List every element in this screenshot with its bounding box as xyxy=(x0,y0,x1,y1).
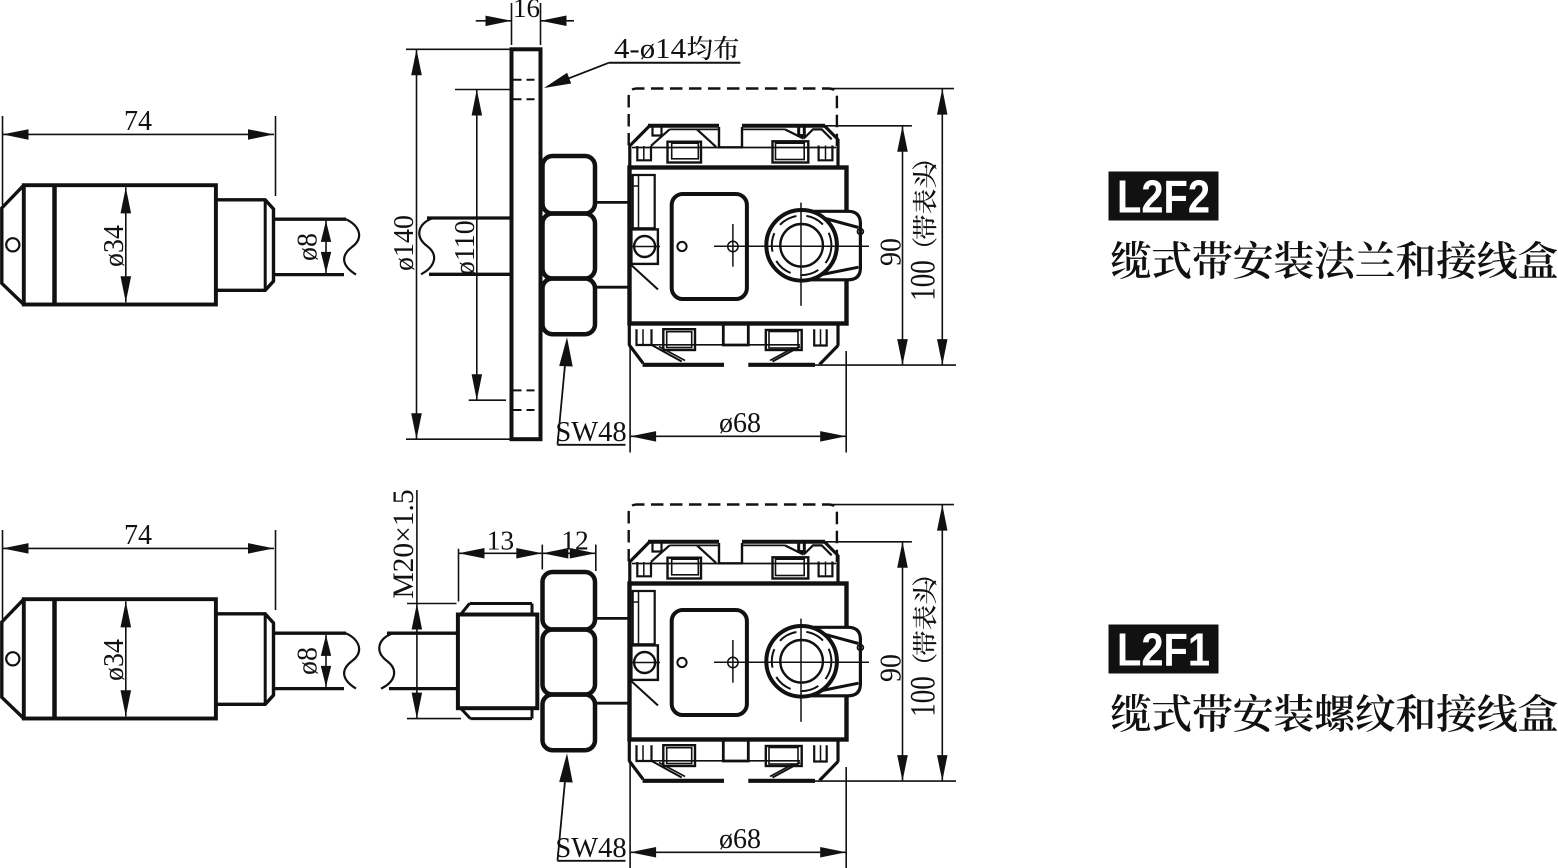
svg-text:74: 74 xyxy=(124,520,152,551)
svg-text:ø68: ø68 xyxy=(719,824,761,855)
svg-text:ø8: ø8 xyxy=(293,233,324,261)
svg-text:4-ø14: 4-ø14 xyxy=(614,34,686,65)
svg-text:SW48: SW48 xyxy=(555,833,626,864)
svg-text:ø140: ø140 xyxy=(389,215,420,271)
svg-text:100: 100 xyxy=(901,260,942,300)
svg-text:M20×1.5: M20×1.5 xyxy=(388,489,420,598)
svg-text:ø8: ø8 xyxy=(293,647,324,675)
svg-text:ø34: ø34 xyxy=(99,225,130,267)
svg-text:SW48: SW48 xyxy=(555,417,626,448)
svg-text:L2F2: L2F2 xyxy=(1117,171,1210,223)
svg-text:100: 100 xyxy=(901,676,942,716)
svg-text:74: 74 xyxy=(124,106,152,137)
svg-text:ø68: ø68 xyxy=(719,408,761,439)
svg-text:16: 16 xyxy=(513,0,540,23)
svg-text:12: 12 xyxy=(561,525,589,556)
svg-text:L2F1: L2F1 xyxy=(1117,624,1210,676)
svg-text:13: 13 xyxy=(487,525,515,556)
svg-text:ø34: ø34 xyxy=(99,639,130,681)
svg-text:ø110: ø110 xyxy=(450,220,481,275)
